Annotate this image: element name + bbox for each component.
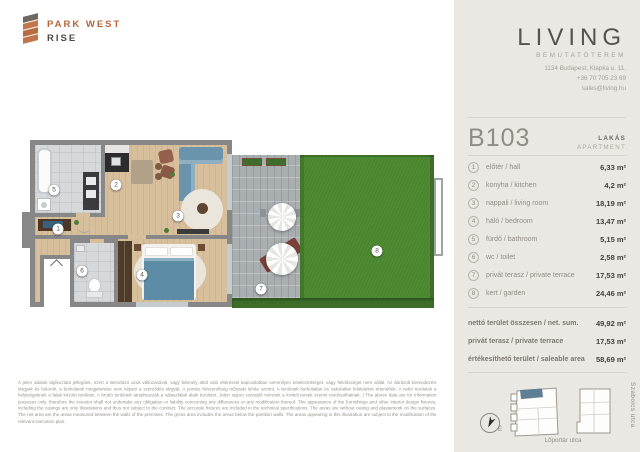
room-number-badge: 1: [468, 162, 479, 173]
site-map: É Lőportár utca Szabolcs utca: [468, 380, 626, 446]
showroom-contact: 1134 Budapest, Klapka u. 11. +36 70 705 …: [544, 64, 626, 94]
plan-room-marker: 8: [372, 246, 383, 257]
room-row: 1előtér / hall6,33 m²: [468, 158, 626, 176]
floor-plan: 12345678: [30, 138, 442, 312]
room-row: 6wc / toilet2,58 m²: [468, 248, 626, 266]
showroom-phone: +36 70 705 23 69: [544, 74, 626, 84]
window: [136, 302, 188, 307]
nightstand: [198, 244, 205, 251]
total-label: nettó terület összesen / net. sum.: [468, 320, 578, 327]
room-row: 3nappali / living room18,19 m²: [468, 194, 626, 212]
pillow: [170, 247, 193, 256]
compass-needle-icon: [483, 415, 498, 430]
parasol-table: [268, 203, 296, 231]
private-terrace: [232, 155, 300, 298]
room-area: 5,15 m²: [600, 235, 626, 244]
coffee-table: [197, 203, 208, 214]
plan-room-marker: 3: [173, 211, 184, 222]
room-label: kert / garden: [486, 290, 596, 297]
room-label: előtér / hall: [486, 164, 600, 171]
compass-icon: [480, 413, 500, 433]
total-value: 17,53 m²: [596, 337, 626, 346]
garden: [300, 155, 434, 298]
compass-north-label: É: [498, 426, 502, 433]
parasol-table: [266, 243, 298, 275]
divider: [468, 155, 626, 156]
room-row: 5fürdő / bathroom5,15 m²: [468, 230, 626, 248]
terrace-chair: [260, 209, 266, 217]
wardrobe: [118, 241, 132, 302]
total-row: értékesíthető terület / saleable area58,…: [468, 350, 626, 368]
sink: [86, 177, 96, 185]
room-label: fürdő / bathroom: [486, 236, 600, 243]
nightstand: [134, 244, 141, 251]
room-area: 6,33 m²: [600, 163, 626, 172]
sink: [86, 190, 96, 198]
showroom-subtitle: BEMUTATÓTEREM: [536, 52, 626, 59]
room-label: háló / bedroom: [486, 218, 596, 225]
kitchen-sink: [111, 157, 121, 166]
unit-type: LAKÁS APARTMENT: [577, 135, 626, 151]
potted-plant: [74, 220, 79, 225]
street-label-right: Szabolcs utca: [629, 382, 636, 434]
room-area: 13,47 m²: [596, 217, 626, 226]
area-totals: nettó terület összesen / net. sum.49,92 …: [468, 314, 626, 368]
showroom-email: sales@living.hu: [544, 84, 626, 94]
plan-room-marker: 6: [77, 266, 88, 277]
room-row: 2konyha / kitchen4,2 m²: [468, 176, 626, 194]
unit-type-hu: LAKÁS: [577, 135, 626, 142]
room-number-badge: 5: [468, 234, 479, 245]
planter-box: [266, 158, 286, 166]
room-row: 8kert / garden24,46 m²: [468, 284, 626, 302]
total-row: privát terasz / private terrace17,53 m²: [468, 332, 626, 350]
exterior-wall-stub: [22, 212, 30, 248]
legal-disclaimer: A jelen adatok tájékoztató jellegűek, ez…: [18, 380, 437, 425]
room-number-badge: 2: [468, 180, 479, 191]
brand-name: PARK WEST RISE: [47, 14, 121, 46]
wall: [35, 213, 101, 217]
total-value: 49,92 m²: [596, 319, 626, 328]
brand-name-line2: RISE: [47, 33, 121, 44]
info-panel: LIVING BEMUTATÓTEREM 1134 Budapest, Klap…: [454, 0, 640, 452]
room-area: 2,58 m²: [600, 253, 626, 262]
room-number-badge: 7: [468, 270, 479, 281]
bed-blanket: [144, 258, 194, 300]
unit-id: B103: [468, 125, 530, 151]
potted-plant: [164, 228, 169, 233]
plan-room-marker: 7: [256, 284, 267, 295]
showroom-address: 1134 Budapest, Klapka u. 11.: [544, 64, 626, 74]
door-opening: [90, 239, 104, 243]
room-number-badge: 4: [468, 216, 479, 227]
room-number-badge: 3: [468, 198, 479, 209]
neighbor-structure: [434, 178, 443, 256]
planter-box: [242, 158, 262, 166]
total-label: privát terasz / private terrace: [468, 338, 563, 345]
room-area: 17,53 m²: [596, 271, 626, 280]
washing-machine: [37, 198, 51, 211]
room-label: konyha / kitchen: [486, 182, 604, 189]
divider: [468, 117, 626, 118]
sofa: [179, 147, 223, 164]
brand-name-line1: PARK WEST: [47, 19, 121, 30]
room-number-badge: 6: [468, 252, 479, 263]
total-value: 58,69 m²: [596, 355, 626, 364]
brand-logo: PARK WEST RISE: [23, 14, 121, 46]
door-swing-arc: [76, 217, 92, 233]
room-number-badge: 8: [468, 288, 479, 299]
potted-plant: [170, 172, 175, 177]
toilet-cistern: [86, 291, 103, 298]
plan-room-marker: 4: [137, 270, 148, 281]
room-label: wc / toilet: [486, 254, 600, 261]
brand-logo-icon: [23, 14, 38, 46]
room-label: privát terasz / private terrace: [486, 272, 596, 279]
kitchen-island: [131, 160, 153, 184]
room-list: 1előtér / hall6,33 m²2konyha / kitchen4,…: [468, 158, 626, 302]
total-label: értékesíthető terület / saleable area: [468, 356, 585, 363]
showroom-logo: LIVING: [517, 24, 626, 52]
room-area: 24,46 m²: [596, 289, 626, 298]
total-row: nettó terület összesen / net. sum.49,92 …: [468, 314, 626, 332]
room-row: 4háló / bedroom13,47 m²: [468, 212, 626, 230]
plan-room-marker: 2: [111, 180, 122, 191]
unit-header: B103 LAKÁS APARTMENT: [468, 121, 626, 154]
building-footprints: [508, 384, 618, 438]
tv-sideboard: [177, 229, 209, 234]
room-row: 7privát terasz / private terrace17,53 m²: [468, 266, 626, 284]
room-label: nappali / living room: [486, 200, 596, 207]
room-area: 18,19 m²: [596, 199, 626, 208]
divider: [468, 307, 626, 308]
street-label-bottom: Lőportár utca: [508, 437, 618, 444]
pillow: [145, 247, 168, 256]
room-area: 4,2 m²: [604, 181, 626, 190]
wc-sink: [76, 245, 85, 252]
bathroom-vanity: [83, 172, 99, 210]
unit-type-en: APARTMENT: [577, 144, 626, 151]
hedge: [232, 298, 434, 308]
plan-room-marker: 1: [53, 224, 64, 235]
divider: [468, 372, 626, 373]
plan-room-marker: 5: [49, 185, 60, 196]
